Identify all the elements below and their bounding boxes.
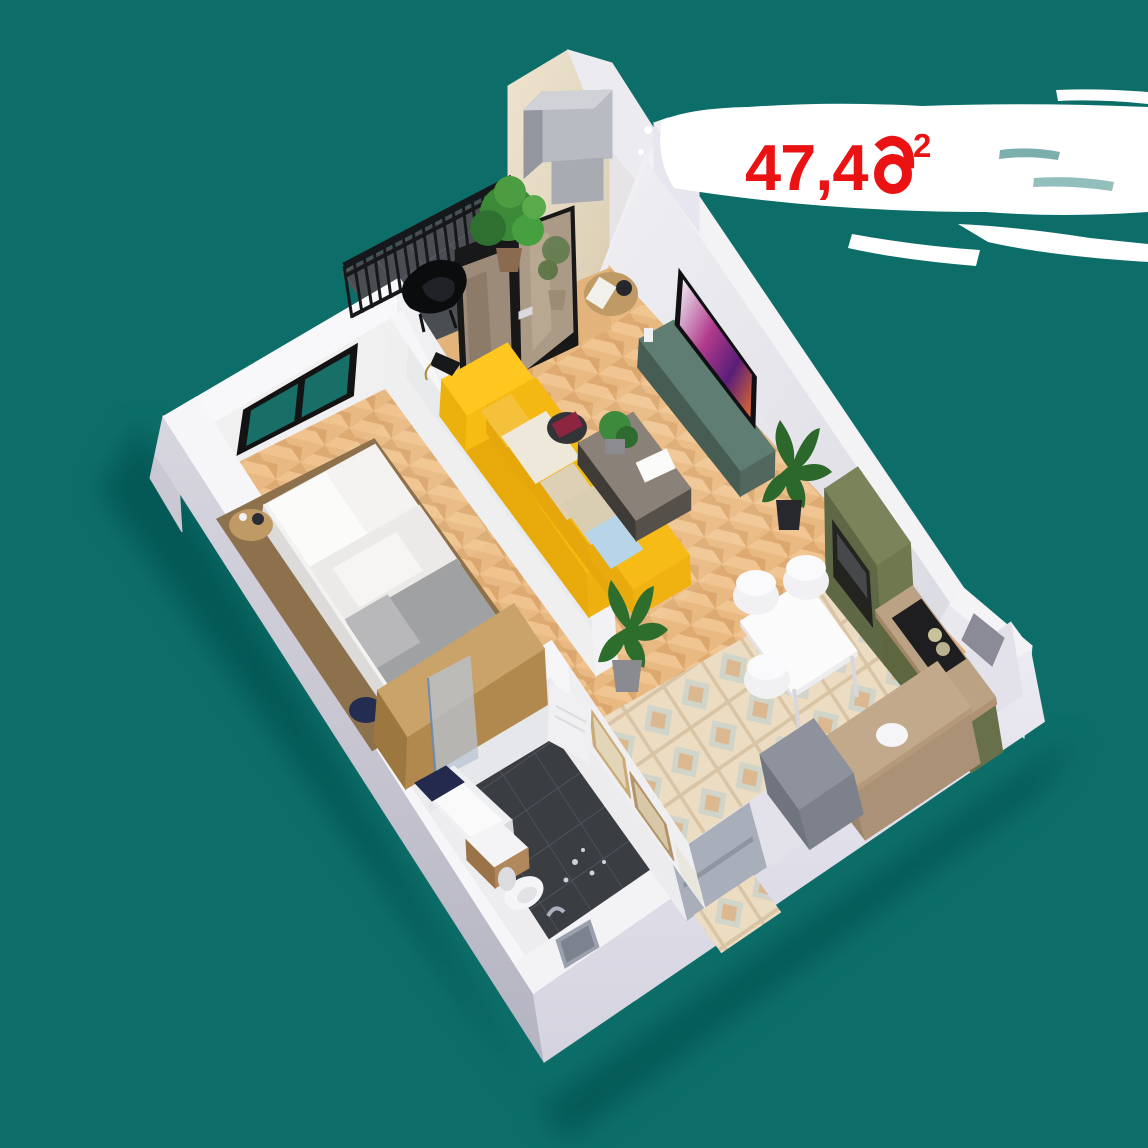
svg-text:47,4: 47,4 <box>745 131 868 204</box>
svg-text:2: 2 <box>913 127 931 164</box>
